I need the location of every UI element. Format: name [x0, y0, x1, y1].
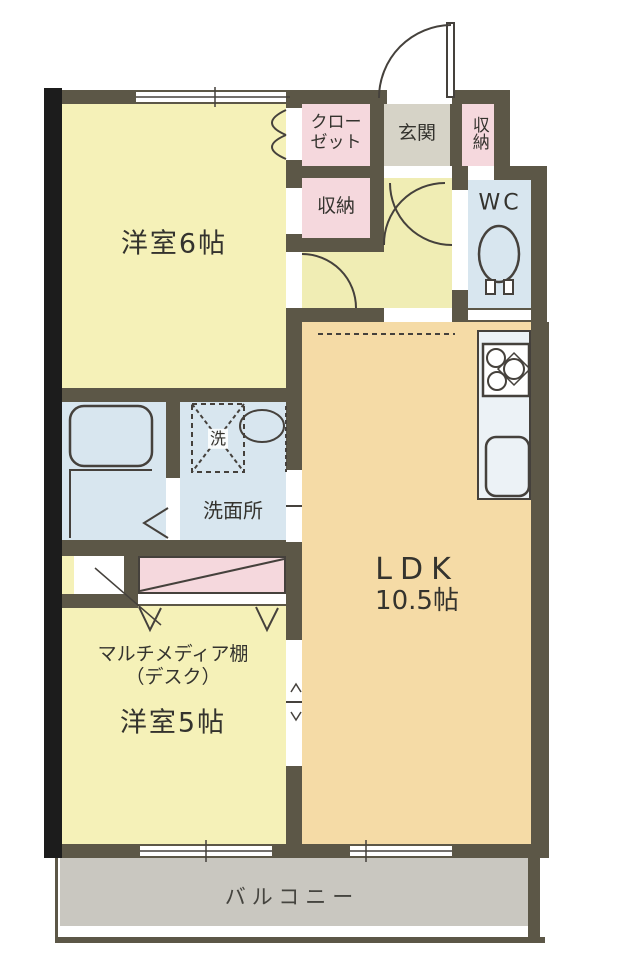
- wall-mid-6: [286, 766, 302, 844]
- window-bedroom6: [136, 90, 290, 104]
- wall-outer-left: [44, 88, 62, 858]
- desk-shelf-front: [138, 594, 286, 606]
- ldk-label: LDK: [375, 553, 459, 588]
- room-bath: [62, 402, 166, 540]
- wall-bath-top: [62, 388, 286, 402]
- wall-bottom-c: [452, 844, 531, 858]
- balcony-label: バルコニー: [225, 885, 360, 909]
- storage-top-label: 収納: [468, 116, 488, 150]
- wall-closet-right: [370, 104, 384, 252]
- wall-hall-ldk-b: [452, 308, 468, 322]
- wall-right-main: [531, 322, 549, 858]
- bedroom5-label: 洋室5帖: [120, 707, 226, 738]
- window-ldk: [350, 844, 452, 858]
- closet-label-line1: クロー: [311, 113, 362, 133]
- washroom-label: 洗面所: [203, 500, 263, 523]
- sliding-door-arrows: [291, 684, 301, 720]
- closet-label-line2: ゼット: [311, 133, 362, 153]
- wall-storage-mid-bottom: [286, 238, 384, 252]
- wall-bath-bottom: [62, 540, 286, 556]
- window-wc: [468, 308, 531, 322]
- desk-white-part: [74, 556, 124, 594]
- wall-bottom-b: [272, 844, 350, 858]
- wall-bath-right: [166, 402, 180, 478]
- hallway-lower: [302, 252, 384, 308]
- entrance-door-leaf: [446, 22, 455, 98]
- wall-top-b: [286, 90, 387, 104]
- wall-wc-left-a: [452, 166, 468, 190]
- wall-wc-right: [531, 166, 547, 322]
- hallway-upper: [384, 178, 452, 308]
- wall-entrance-right: [450, 104, 462, 166]
- wall-mid-5: [286, 542, 302, 640]
- wall-bottom-a: [62, 844, 140, 858]
- kitchen-counter: [477, 330, 531, 500]
- wc-label: WC: [478, 190, 521, 215]
- storage-mid-label: 収納: [317, 196, 355, 218]
- entrance-door-arc: [379, 25, 451, 98]
- wall-mid-1: [286, 104, 302, 108]
- entrance-label: 玄関: [398, 123, 436, 145]
- balcony-border-right: [528, 858, 540, 938]
- ldk-size-label: 10.5帖: [375, 587, 459, 617]
- desk-wall-under: [62, 594, 124, 608]
- washer-label: 洗: [208, 429, 228, 449]
- bedroom6-label: 洋室6帖: [121, 228, 227, 259]
- window-bedroom5: [140, 844, 272, 858]
- desk-label-line1: マルチメディア棚: [98, 644, 249, 666]
- balcony-border-bottom: [55, 937, 545, 943]
- wall-wc-left-b: [452, 290, 468, 308]
- wall-storage-mid-top: [302, 166, 384, 178]
- desk-label-line2: （デスク）: [125, 667, 220, 689]
- desk-shelf: [138, 556, 286, 594]
- closet-label: クロー ゼット: [311, 113, 362, 152]
- wall-hall-ldk-a: [302, 308, 384, 322]
- wall-mid-4: [286, 308, 302, 470]
- wall-top-a: [62, 90, 136, 104]
- wall-mid-2: [286, 160, 302, 188]
- balcony-border-left: [55, 858, 58, 943]
- desk-wall-stub: [124, 556, 138, 608]
- floor-plan: 洋室6帖 クロー ゼット 玄関 収納 収納 WC 洗 洗面所 LDK 10.5帖…: [0, 0, 630, 960]
